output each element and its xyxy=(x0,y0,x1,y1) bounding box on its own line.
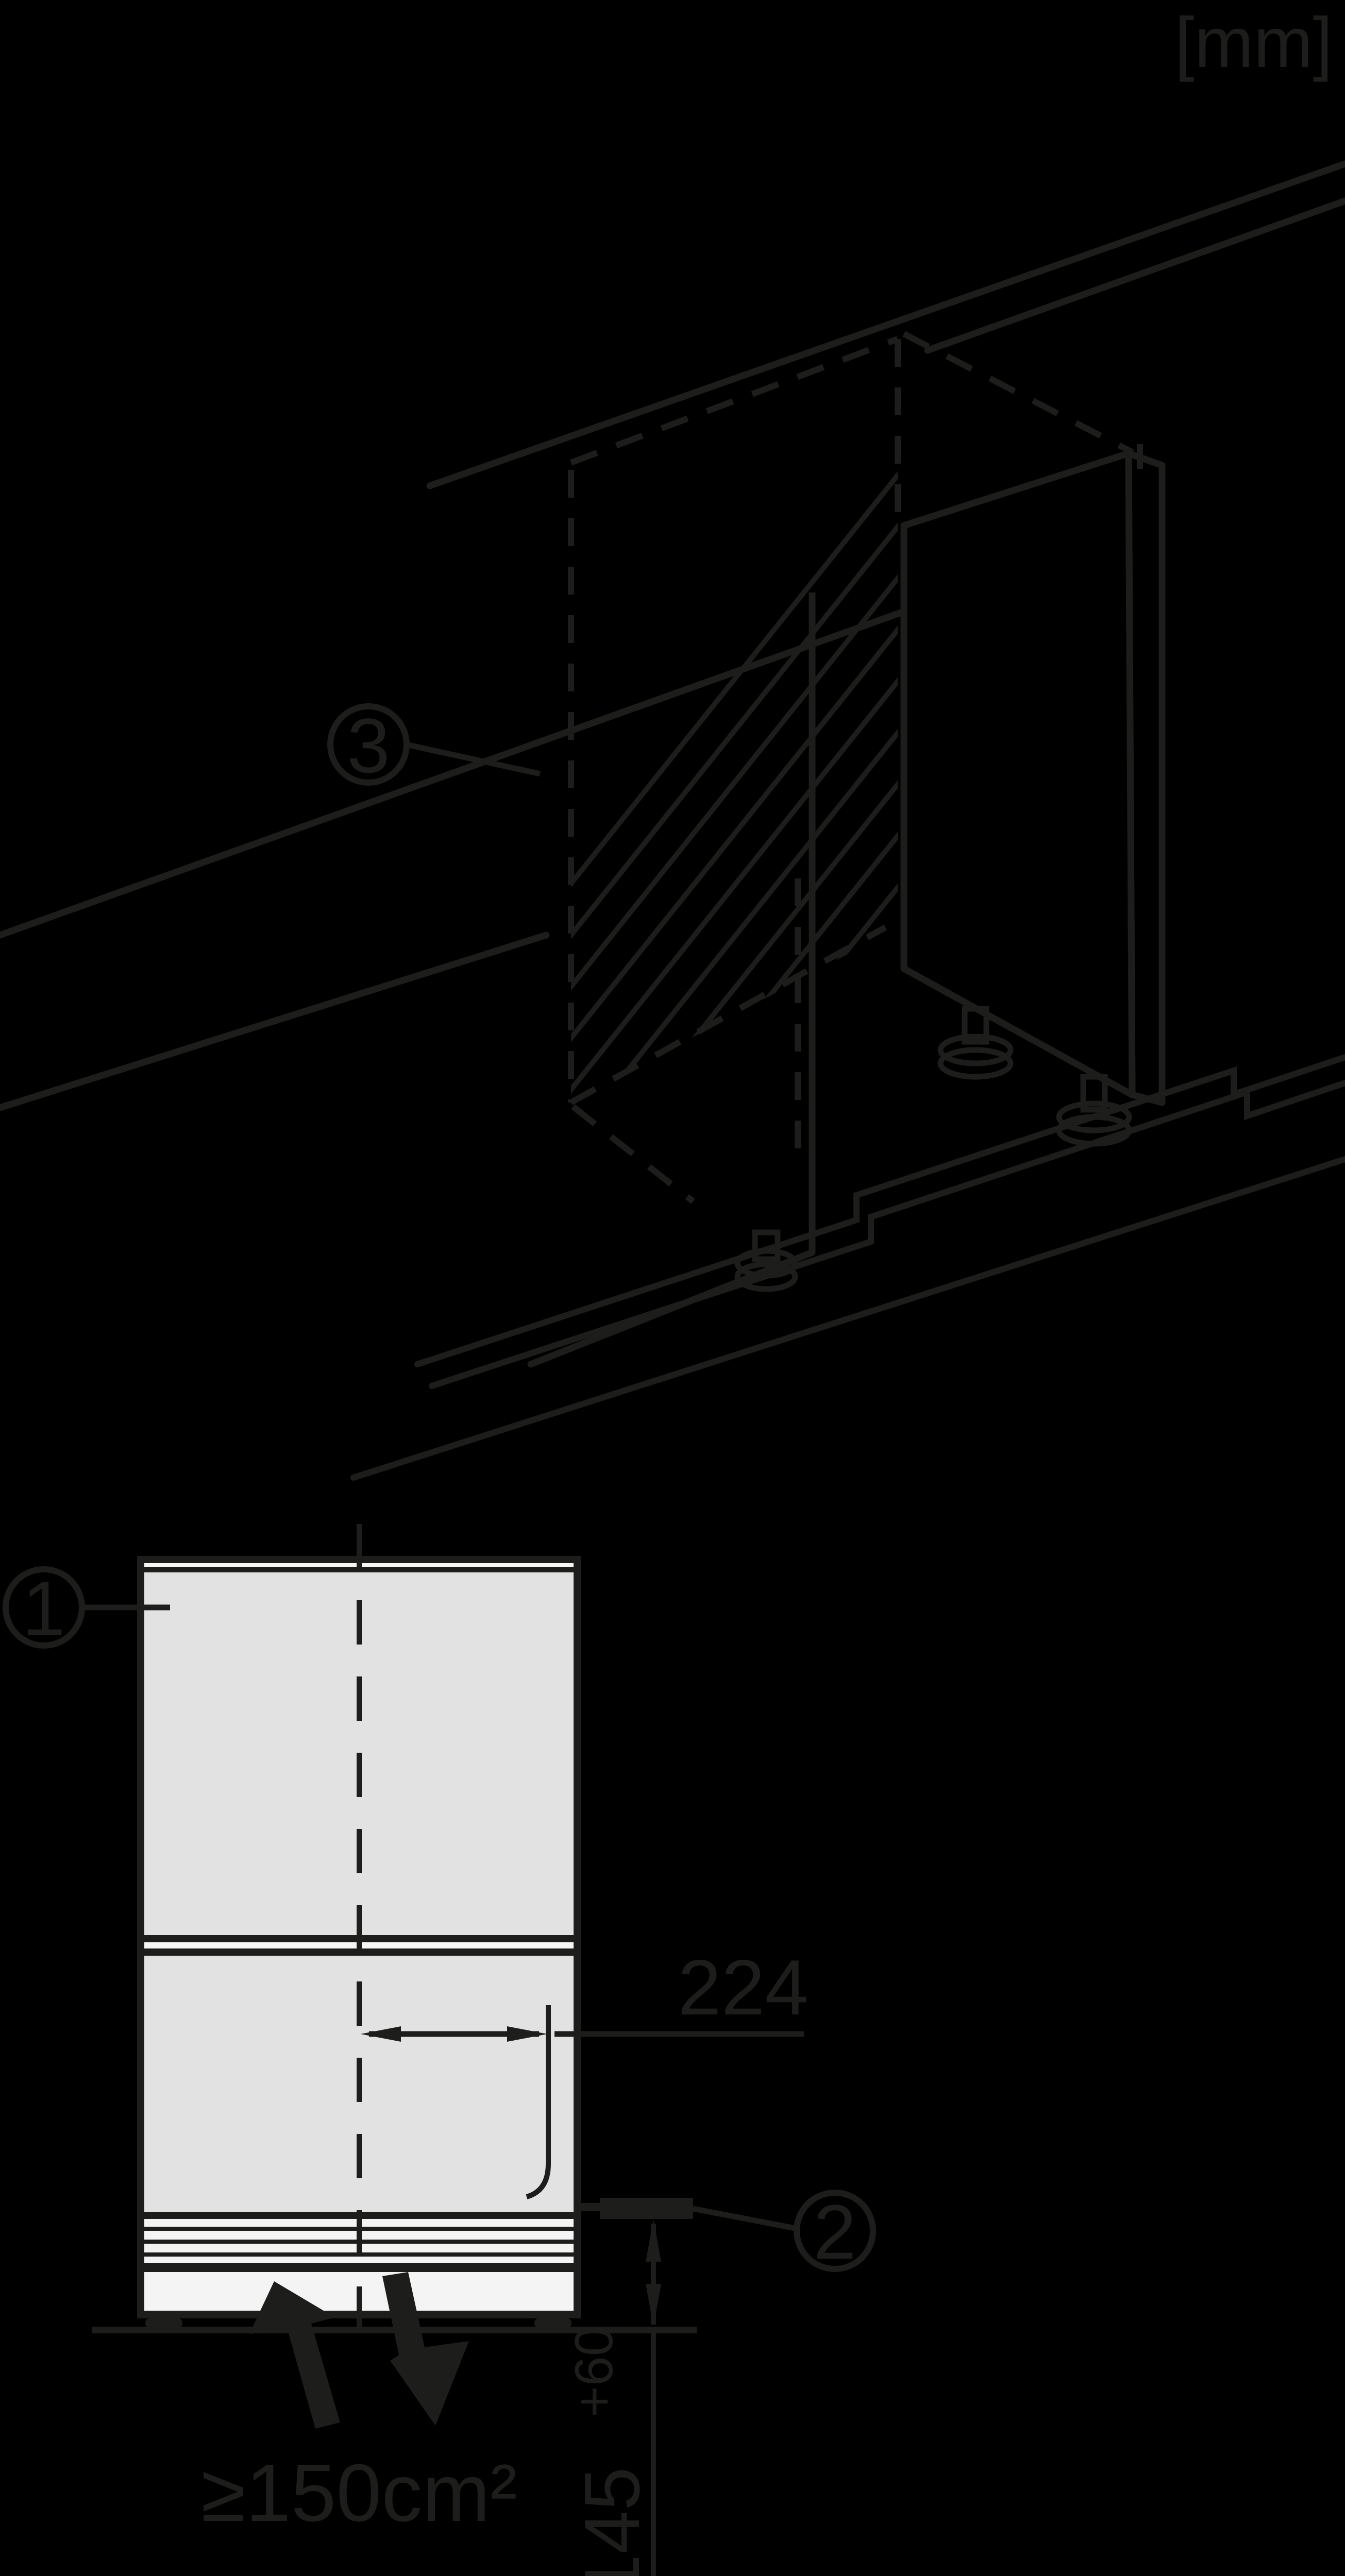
installation-diagram-page: [mm] xyxy=(0,0,1345,2576)
dim-145-arrowhead-down xyxy=(646,2284,661,2326)
counter-edge-line xyxy=(0,935,546,1108)
wall-spacer: 2 xyxy=(581,2189,873,2275)
door-side-face xyxy=(1129,453,1162,1103)
plinth-slat xyxy=(144,2257,574,2263)
wall-spacer-tab xyxy=(581,2203,600,2211)
appliance-foot-left xyxy=(145,2318,182,2328)
ceiling-front-edge-lower xyxy=(928,201,1345,350)
callout-2-leader xyxy=(693,2209,798,2229)
furniture-door-panel xyxy=(904,453,1162,1144)
ceiling-front-edge-upper xyxy=(430,164,1345,486)
units-label: [mm] xyxy=(1174,3,1333,82)
floor-rail-bottom-edge xyxy=(432,1083,1345,1386)
hatched-wall xyxy=(289,399,1345,1319)
door-front-face xyxy=(904,453,1132,1095)
iso-diagram: 3 xyxy=(0,164,1345,1478)
plinth-band-line xyxy=(144,2263,574,2272)
niche-top-right-edge xyxy=(904,334,1133,452)
dim-145-label: 145 xyxy=(568,2467,656,2576)
hatch-lines xyxy=(289,399,1345,1319)
ventilation-label: ≥150cm² xyxy=(201,2448,517,2538)
door-divider-lower-line xyxy=(144,1948,574,1956)
floor-rails xyxy=(354,1057,1345,1478)
dim-224-label: 224 xyxy=(678,1944,809,2031)
appliance-foot-right xyxy=(534,2318,571,2328)
callout-2-label: 2 xyxy=(813,2189,856,2275)
dim-145-arrowhead-up xyxy=(646,2219,661,2262)
dim-145-tolerance-label: +60 xyxy=(564,2327,624,2417)
floor-front-line xyxy=(354,1159,1345,1478)
niche-top-rear-edge xyxy=(571,339,898,463)
callout-1-label: 1 xyxy=(22,1565,65,1652)
callout-3-label: 3 xyxy=(347,702,390,789)
wall-spacer-bar xyxy=(600,2198,693,2219)
niche-bottom-front-edge xyxy=(573,1107,693,1201)
front-view: 1 224 2 145 +60 xyxy=(6,1524,873,2576)
worktop-edge-line xyxy=(0,612,904,935)
niche-outline-dashed xyxy=(571,334,1133,1201)
niche-bottom-rear-edge xyxy=(571,927,885,1103)
appliance-left-edge xyxy=(137,1556,144,2318)
appliance-right-edge xyxy=(574,1556,581,2318)
